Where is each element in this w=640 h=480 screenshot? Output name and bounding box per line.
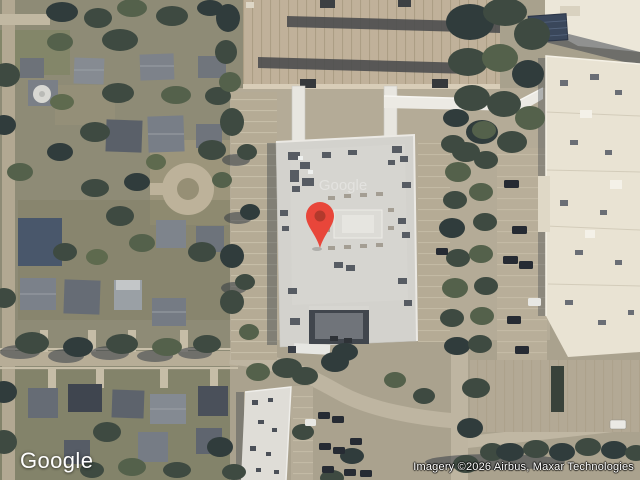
central-building: [267, 135, 417, 355]
pin-inner-circle: [315, 211, 326, 222]
google-watermark: Google: [319, 177, 367, 194]
imagery-attribution: Imagery ©2026 Airbus, Maxar Technologies: [413, 461, 634, 473]
pin-shadow: [312, 247, 322, 251]
location-pin-marker[interactable]: [300, 194, 340, 254]
map-canvas[interactable]: Google Google Imagery ©2026 Airbus, Maxa…: [0, 0, 640, 480]
google-logo[interactable]: Google: [20, 448, 93, 474]
pin-body: [306, 202, 334, 248]
